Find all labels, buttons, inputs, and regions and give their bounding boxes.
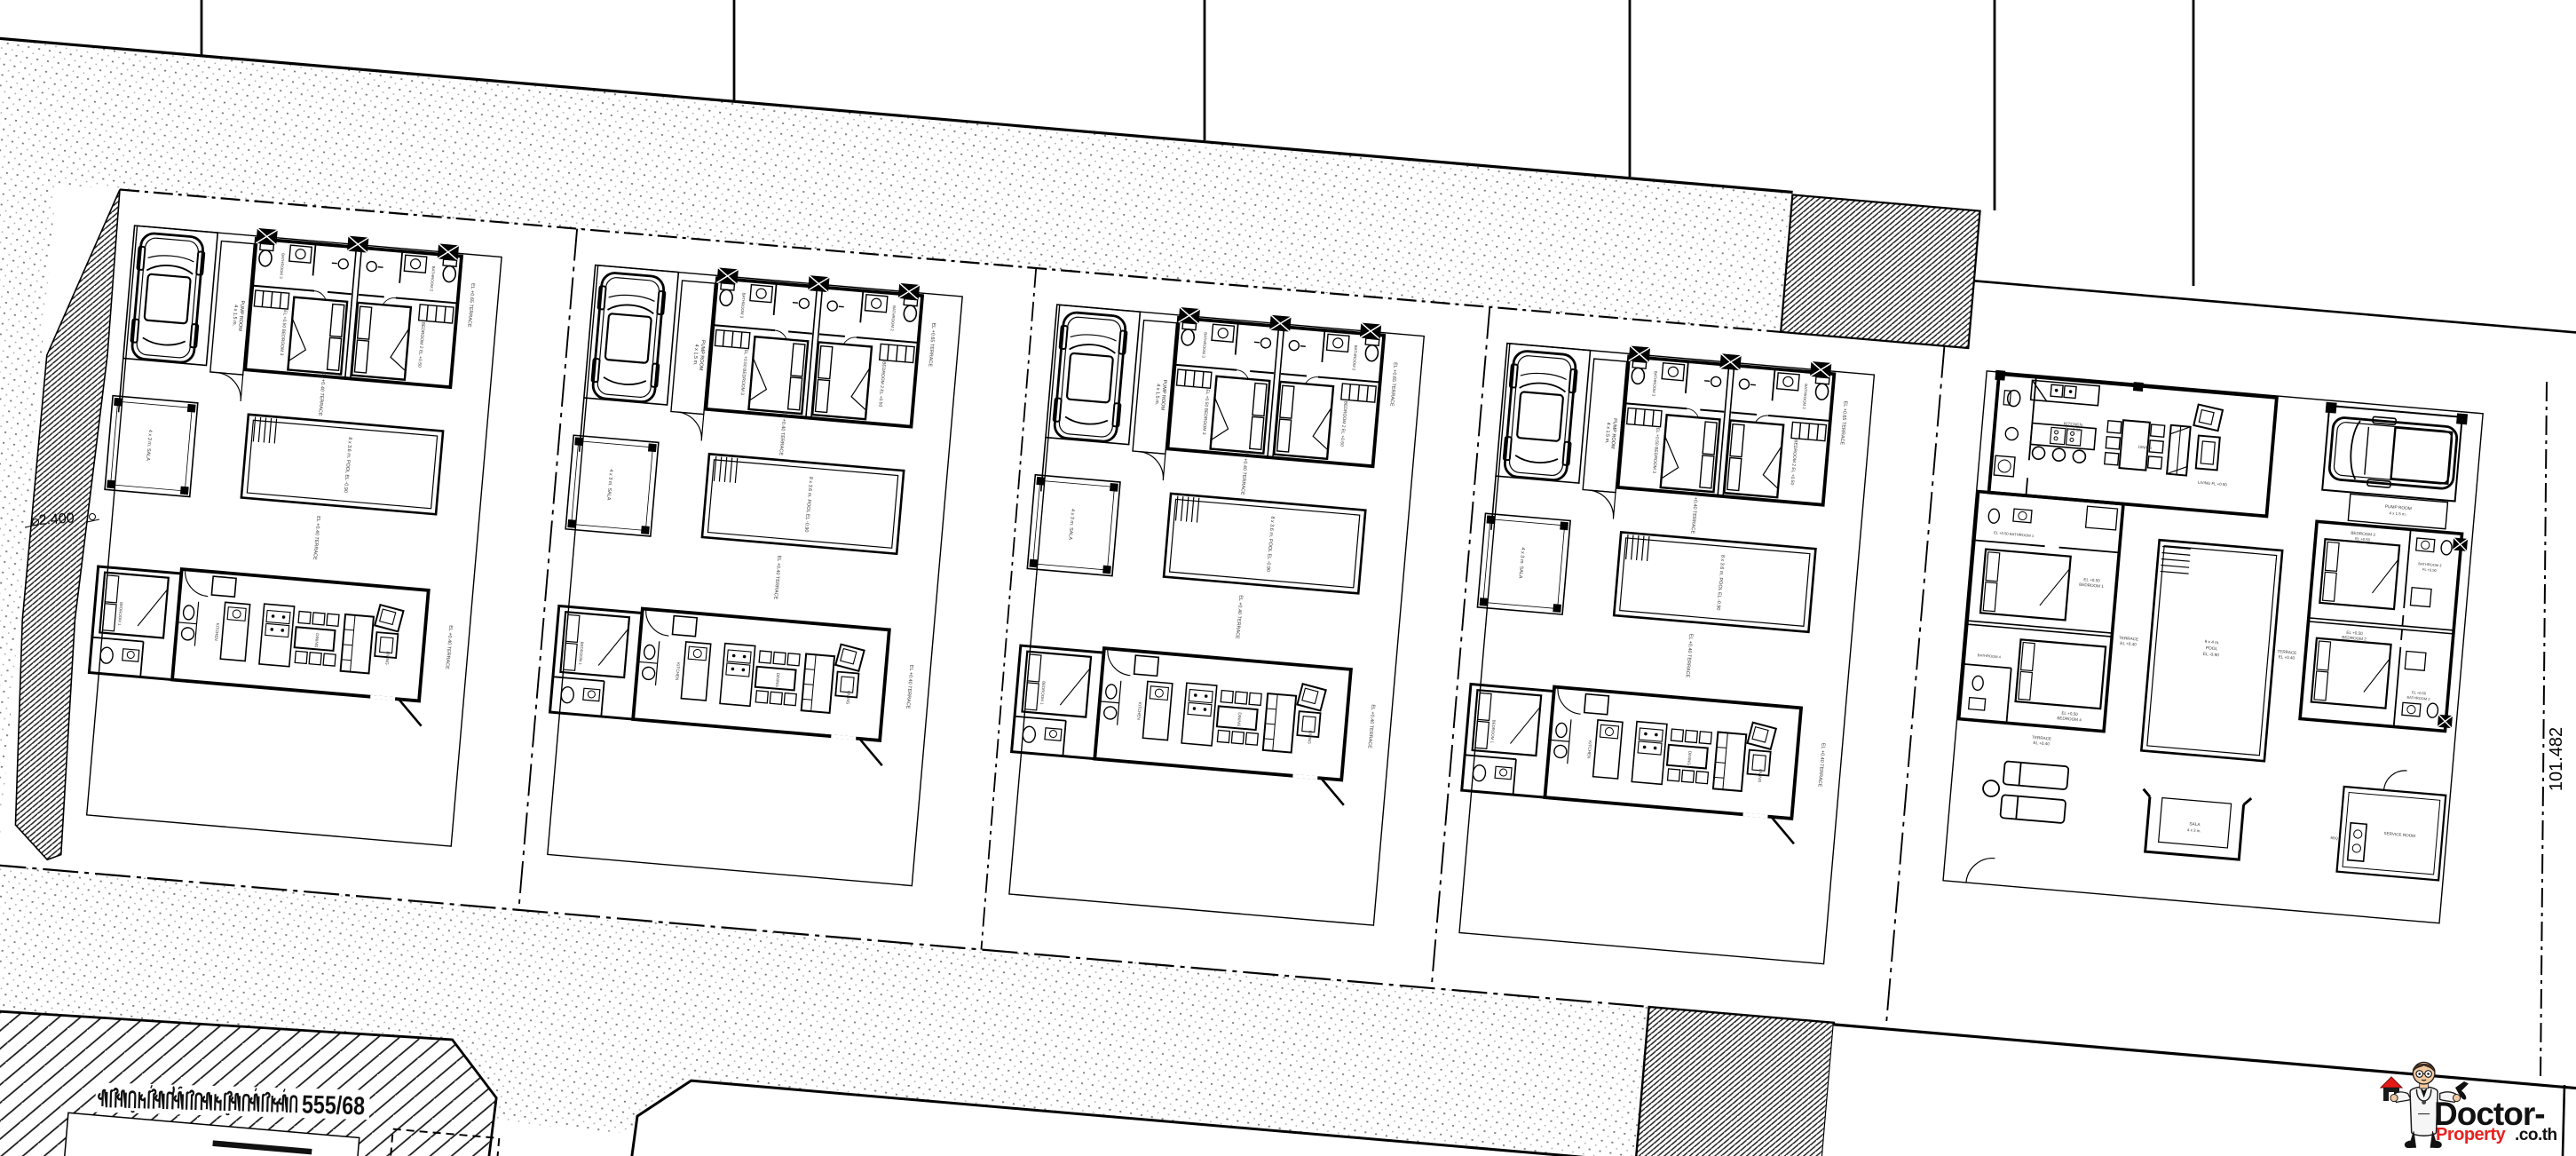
svg-text:101.482: 101.482	[2547, 727, 2566, 791]
svg-text:BBQ: BBQ	[2330, 835, 2338, 841]
svg-text:SALA: SALA	[2189, 821, 2201, 827]
svg-text:POOL: POOL	[2206, 645, 2218, 652]
svg-text:2.400: 2.400	[38, 511, 75, 528]
svg-text:555/68: 555/68	[302, 1089, 366, 1120]
svg-text:Property: Property	[2436, 1125, 2507, 1144]
svg-text:.co.th: .co.th	[2515, 1126, 2557, 1144]
